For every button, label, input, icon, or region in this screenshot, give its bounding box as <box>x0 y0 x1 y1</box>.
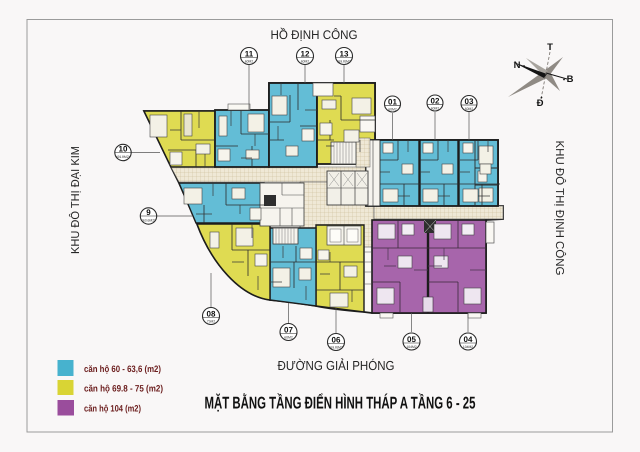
svg-text:01: 01 <box>388 98 397 107</box>
svg-text:KHU ĐÔ THỊ ĐỊNH CÔNG: KHU ĐÔ THỊ ĐỊNH CÔNG <box>553 141 567 276</box>
svg-text:06: 06 <box>332 336 341 345</box>
svg-text:HỒ ĐỊNH CÔNG: HỒ ĐỊNH CÔNG <box>271 27 358 42</box>
svg-text:9: 9 <box>146 208 151 217</box>
svg-text:07: 07 <box>284 326 293 335</box>
svg-text:02: 02 <box>431 97 440 106</box>
svg-text:(69.8M2): (69.8M2) <box>116 155 130 159</box>
svg-text:60M2: 60M2 <box>431 107 440 111</box>
svg-text:Đ: Đ <box>537 98 544 109</box>
svg-text:05: 05 <box>407 335 416 344</box>
svg-text:(63.6M2): (63.6M2) <box>142 219 156 223</box>
svg-text:60M2: 60M2 <box>284 336 293 340</box>
svg-text:(69.8)M2: (69.8)M2 <box>337 60 351 64</box>
svg-text:(69.8)M2: (69.8)M2 <box>329 346 343 350</box>
svg-text:104M2: 104M2 <box>406 345 416 349</box>
svg-text:60M2: 60M2 <box>245 60 254 64</box>
svg-text:T: T <box>547 42 553 53</box>
svg-text:60M2: 60M2 <box>301 60 310 64</box>
svg-text:03: 03 <box>465 97 474 106</box>
svg-text:08: 08 <box>207 310 216 319</box>
svg-text:60M2: 60M2 <box>388 108 397 112</box>
svg-text:12: 12 <box>301 50 310 59</box>
svg-text:04: 04 <box>464 335 473 344</box>
svg-text:căn hộ 104 (m2): căn hộ 104 (m2) <box>84 404 141 414</box>
svg-text:10: 10 <box>119 145 128 154</box>
svg-text:căn hộ 60 - 63,6 (m2): căn hộ 60 - 63,6 (m2) <box>84 364 161 374</box>
svg-text:75M2: 75M2 <box>207 320 216 324</box>
svg-text:13: 13 <box>340 50 349 59</box>
svg-text:căn hộ 69.8 - 75 (m2): căn hộ 69.8 - 75 (m2) <box>84 384 163 394</box>
svg-text:B: B <box>567 74 574 85</box>
svg-text:104M2: 104M2 <box>463 345 473 349</box>
svg-text:MẶT BẰNG TẦNG ĐIỂN HÌNH THÁP A: MẶT BẰNG TẦNG ĐIỂN HÌNH THÁP A TẦNG 6 - … <box>205 393 476 413</box>
svg-text:11: 11 <box>245 50 254 59</box>
svg-text:60M2: 60M2 <box>465 107 474 111</box>
svg-text:KHU ĐÔ THỊ ĐẠI KIM: KHU ĐÔ THỊ ĐẠI KIM <box>68 146 82 254</box>
svg-text:N: N <box>514 60 521 71</box>
svg-text:ĐƯỜNG GIẢI PHÓNG: ĐƯỜNG GIẢI PHÓNG <box>278 358 395 373</box>
